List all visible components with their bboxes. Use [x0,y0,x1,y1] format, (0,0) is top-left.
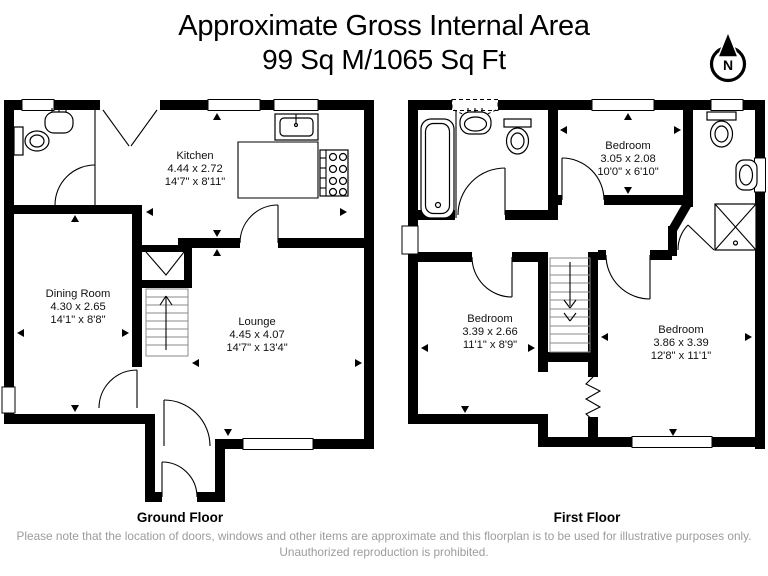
toilet-icon [14,127,49,155]
room-imperial: 14'7" x 8'11" [135,176,255,189]
room-label-bedroom1: Bedroom 3.05 x 2.08 10'0" x 6'10" [568,140,688,179]
room-imperial: 14'1" x 8'8" [18,314,138,327]
room-name: Kitchen [135,150,255,163]
room-imperial: 14'7" x 13'4" [197,342,317,355]
ensuite-sink-icon [736,160,757,190]
hob-icon [320,150,348,196]
room-metric: 3.05 x 2.08 [568,153,688,166]
sink-icon [45,108,73,133]
page-title: Approximate Gross Internal Area 99 Sq M/… [0,9,768,77]
ground-floor-label: Ground Floor [110,510,250,525]
stairs-down-icon [550,258,590,352]
room-label-bedroom2: Bedroom 3.39 x 2.66 11'1" x 8'9" [430,313,550,352]
front-door-opening [100,99,160,111]
room-label-kitchen: Kitchen 4.44 x 2.72 14'7" x 8'11" [135,150,255,189]
room-name: Bedroom [568,140,688,153]
title-line2: 99 Sq M/1065 Sq Ft [0,43,768,77]
room-label-bedroom3: Bedroom 3.86 x 3.39 12'8" x 11'1" [621,324,741,363]
room-imperial: 12'8" x 11'1" [621,350,741,363]
room-imperial: 11'1" x 8'9" [430,339,550,352]
kitchen-sink-icon [275,114,318,140]
bathroom-toilet-icon [504,119,531,154]
cupboard-door-icon [146,252,184,275]
room-label-dining: Dining Room 4.30 x 2.65 14'1" x 8'8" [18,288,138,327]
shower-icon [715,204,756,250]
room-name: Bedroom [621,324,741,337]
room-metric: 3.86 x 3.39 [621,337,741,350]
floorplan-page: N Approximate Gross Internal Area 99 Sq … [0,0,768,576]
room-metric: 4.30 x 2.65 [18,301,138,314]
folding-door-icon [586,377,600,420]
bathroom-sink-icon [460,108,491,134]
bath-icon [421,110,456,218]
room-metric: 4.44 x 2.72 [135,163,255,176]
room-metric: 4.45 x 4.07 [197,329,317,342]
room-metric: 3.39 x 2.66 [430,326,550,339]
room-label-lounge: Lounge 4.45 x 4.07 14'7" x 13'4" [197,316,317,355]
stairs-up-icon [146,289,188,356]
angled-wall [673,203,688,229]
room-name: Dining Room [18,288,138,301]
first-floor-label: First Floor [517,510,657,525]
title-line1: Approximate Gross Internal Area [0,9,768,43]
room-imperial: 10'0" x 6'10" [568,166,688,179]
room-name: Bedroom [430,313,550,326]
disclaimer-text: Please note that the location of doors, … [12,529,756,560]
ensuite-toilet-icon [707,112,736,147]
room-name: Lounge [197,316,317,329]
